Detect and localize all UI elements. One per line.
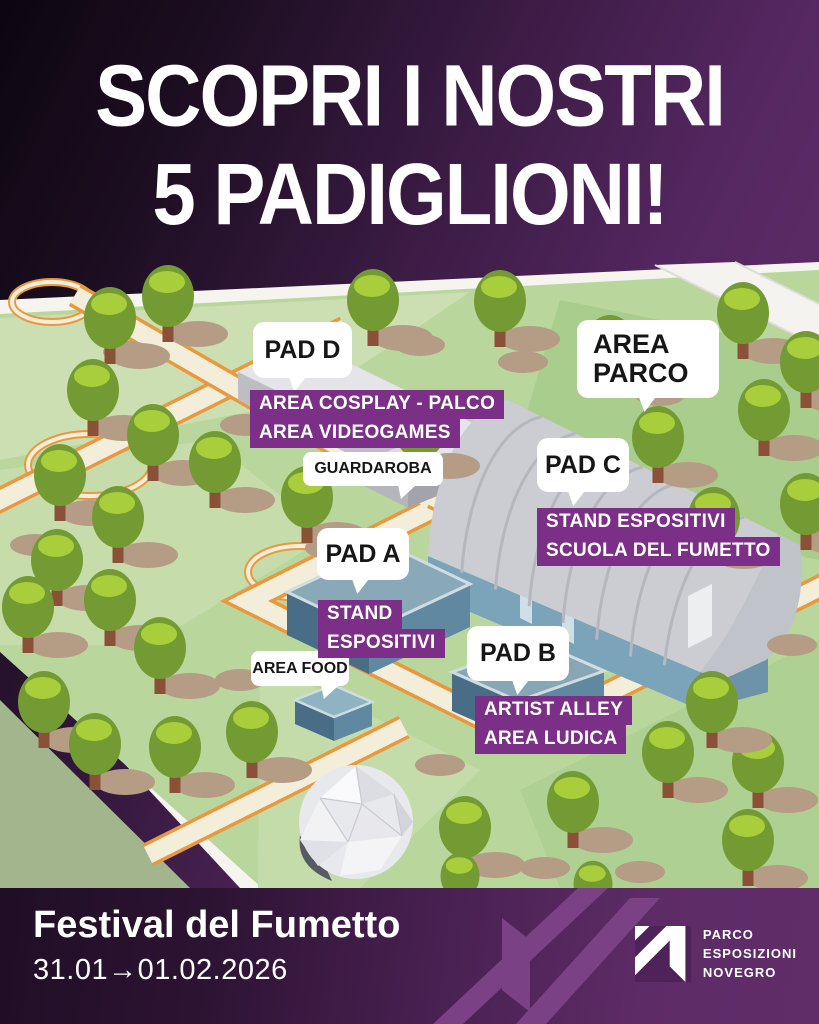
chips-pad-c: STAND ESPOSITIVI SCUOLA DEL FUMETTO (537, 508, 780, 566)
headline-line2: 5 PADIGLIONI! (0, 145, 819, 244)
bubble-tail (635, 396, 656, 412)
festival-title: Festival del Fumetto (33, 904, 400, 947)
logo-wordmark: PARCO ESPOSIZIONI NOVEGRO (703, 926, 797, 983)
bubble-pad-a-label: PAD A (326, 540, 401, 569)
festival-dates: 31.01→01.02.2026 (33, 954, 288, 987)
bubble-tail (348, 578, 369, 594)
chip-stand: STAND (318, 600, 402, 629)
chip-espositivi: ESPOSITIVI (318, 629, 445, 658)
bubble-area-parco: AREA PARCO (577, 320, 719, 398)
bubble-pad-b: PAD B (467, 626, 569, 681)
bubble-pad-d-label: PAD D (265, 336, 341, 365)
novegro-n-logo-icon (635, 926, 691, 982)
bubble-pad-b-label: PAD B (480, 639, 556, 668)
chip-artist-alley: ARTIST ALLEY (475, 696, 632, 725)
bubble-pad-c-label: PAD C (545, 451, 621, 480)
bubble-guardaroba-label: GUARDAROBA (314, 460, 431, 478)
chips-pad-d: AREA COSPLAY - PALCO AREA VIDEOGAMES (250, 390, 504, 448)
chip-area-videogames: AREA VIDEOGAMES (250, 419, 460, 448)
bubble-area-food-label: AREA FOOD (252, 660, 347, 678)
bubble-tail (508, 679, 529, 695)
parco-esposizioni-novegro-logo: PARCO ESPOSIZIONI NOVEGRO (635, 926, 797, 983)
chip-area-cosplay-palco: AREA COSPLAY - PALCO (250, 390, 504, 419)
chip-scuola-del-fumetto: SCUOLA DEL FUMETTO (537, 537, 780, 566)
logo-line-novegro: NOVEGRO (703, 964, 797, 983)
chips-pad-a: STAND ESPOSITIVI (318, 600, 445, 658)
footer-bar: Festival del Fumetto 31.01→01.02.2026 PA… (0, 888, 819, 1024)
novegro-n-watermark (430, 888, 660, 1024)
page-title: SCOPRI I NOSTRI 5 PADIGLIONI! (0, 46, 819, 243)
bubble-pad-a: PAD A (317, 528, 409, 580)
chip-area-ludica: AREA LUDICA (475, 725, 626, 754)
bubble-pad-c: PAD C (537, 438, 629, 492)
bubble-guardaroba: GUARDAROBA (303, 452, 443, 486)
logo-line-esposizioni: ESPOSIZIONI (703, 945, 797, 964)
headline-line1: SCOPRI I NOSTRI (0, 46, 819, 145)
chip-stand-espositivi: STAND ESPOSITIVI (537, 508, 735, 537)
chips-pad-b: ARTIST ALLEY AREA LUDICA (475, 696, 632, 754)
logo-line-parco: PARCO (703, 926, 797, 945)
festival-poster: SCOPRI I NOSTRI 5 PADIGLIONI! (0, 0, 819, 1024)
bubble-pad-d: PAD D (253, 322, 352, 378)
bubble-area-parco-label: AREA PARCO (593, 330, 689, 387)
